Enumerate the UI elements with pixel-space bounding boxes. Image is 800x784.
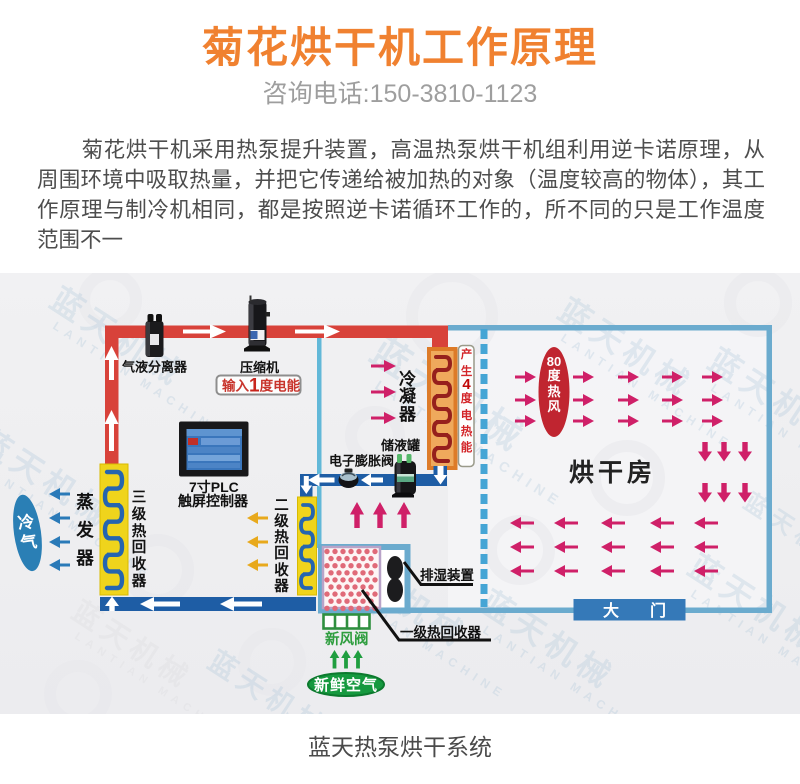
- svg-text:度: 度: [461, 391, 473, 405]
- svg-text:冷: 冷: [16, 511, 36, 533]
- svg-text:三: 三: [132, 490, 147, 506]
- svg-text:一级热回收器: 一级热回收器: [400, 624, 481, 640]
- svg-text:回: 回: [132, 539, 147, 556]
- svg-text:新风阀: 新风阀: [325, 630, 369, 648]
- svg-text:二: 二: [274, 498, 289, 514]
- svg-text:收: 收: [132, 555, 147, 573]
- svg-text:蒸: 蒸: [76, 492, 94, 512]
- svg-text:热: 热: [132, 522, 147, 540]
- svg-text:排湿装置: 排湿装置: [420, 567, 474, 583]
- svg-text:输入1度电能: 输入1度电能: [222, 376, 301, 397]
- svg-text:大门: 大门: [603, 601, 697, 620]
- svg-text:回: 回: [274, 545, 289, 562]
- svg-text:触屏控制器: 触屏控制器: [177, 493, 249, 509]
- svg-text:80: 80: [547, 354, 561, 369]
- svg-text:压缩机: 压缩机: [240, 360, 279, 375]
- svg-text:器: 器: [75, 548, 94, 568]
- svg-text:器: 器: [273, 578, 289, 595]
- svg-text:凝: 凝: [399, 387, 417, 406]
- svg-text:能: 能: [461, 440, 473, 454]
- svg-text:热: 热: [547, 384, 560, 399]
- svg-text:新鲜空气: 新鲜空气: [314, 676, 378, 694]
- svg-text:级: 级: [132, 505, 147, 523]
- svg-text:电: 电: [461, 408, 473, 422]
- svg-text:度: 度: [547, 368, 561, 383]
- svg-text:气液分离器: 气液分离器: [122, 360, 188, 375]
- svg-text:储液罐: 储液罐: [380, 438, 420, 453]
- svg-text:风: 风: [547, 399, 560, 414]
- svg-text:冷: 冷: [399, 369, 416, 389]
- svg-text:级: 级: [274, 512, 289, 530]
- svg-text:器: 器: [398, 405, 417, 424]
- svg-text:热: 热: [461, 424, 473, 438]
- svg-text:电子膨胀阀: 电子膨胀阀: [329, 454, 394, 469]
- svg-text:4: 4: [462, 376, 471, 393]
- svg-text:气: 气: [18, 531, 39, 553]
- svg-text:产: 产: [461, 347, 473, 361]
- svg-text:热: 热: [274, 528, 289, 546]
- svg-text:器: 器: [131, 573, 147, 590]
- svg-text:烘干房: 烘干房: [569, 458, 656, 487]
- svg-text:收: 收: [274, 561, 289, 579]
- svg-text:发: 发: [75, 520, 94, 540]
